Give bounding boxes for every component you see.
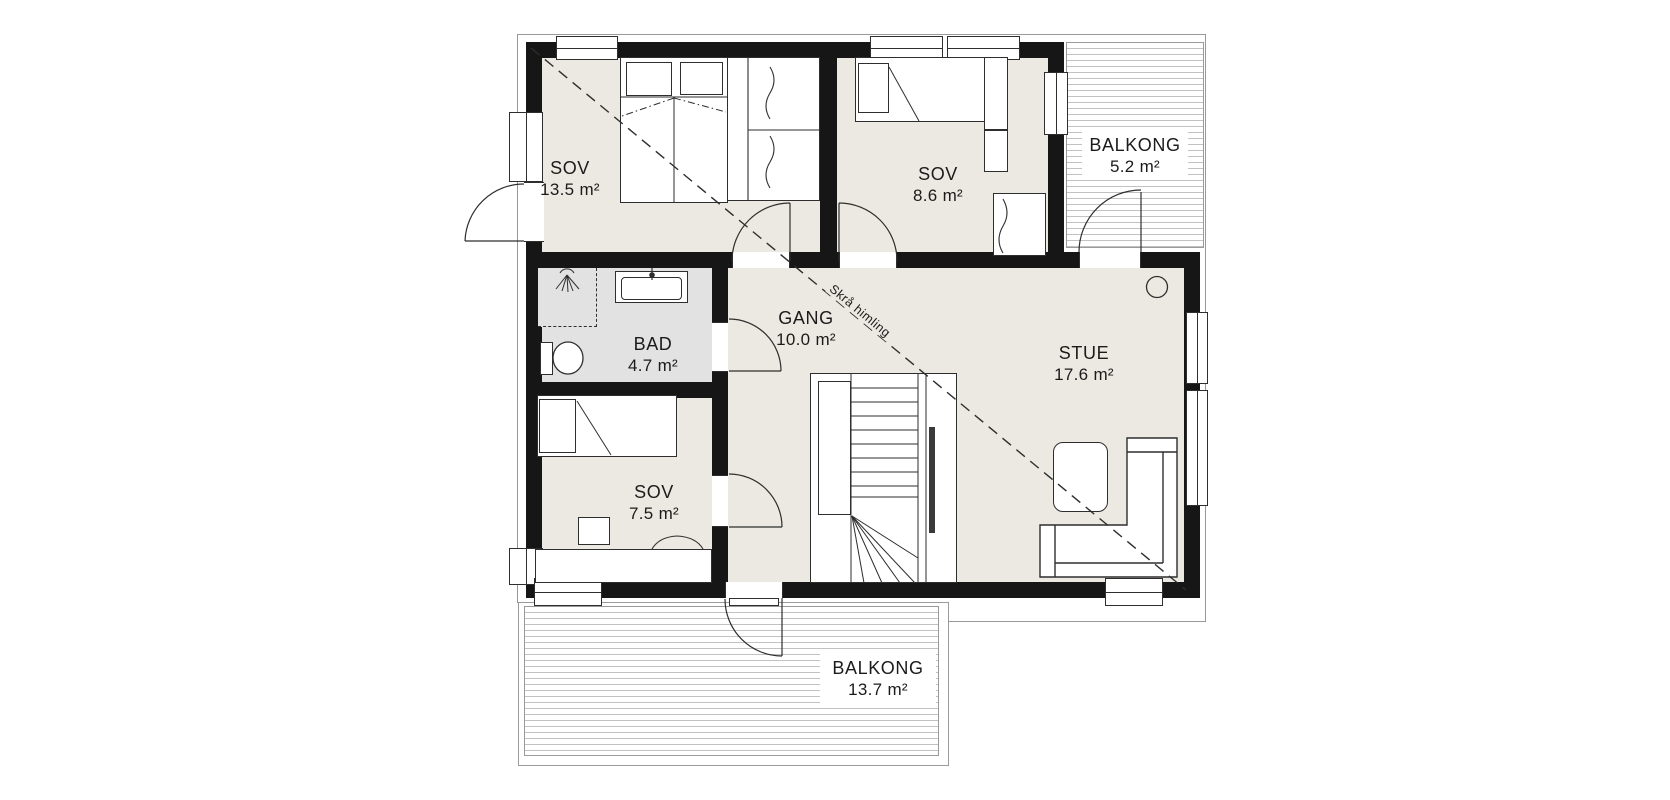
room-label-sov3: SOV 7.5 m² [629,482,679,524]
shelf-sov2 [984,57,1008,130]
room-label-bad: BAD 4.7 m² [628,334,678,376]
window-sov1-left [509,112,543,182]
window-stue-right-1 [1186,312,1208,384]
door-opening-balcony-top [1079,252,1141,268]
room-label-stue: STUE 17.6 m² [1054,343,1114,385]
room-name: SOV [629,482,679,503]
stool-sov3 [578,517,610,545]
room-name: SOV [540,158,600,179]
window-stue-bottom [1105,578,1163,606]
door-opening-bad [712,322,728,372]
window-sov2-balcony [1044,72,1068,135]
room-area: 7.5 m² [629,503,679,524]
door-threshold-balcony-bottom [729,598,779,606]
room-name: STUE [1054,343,1114,364]
door-opening-sov2 [839,252,897,268]
wardrobe-sov1 [727,57,820,201]
room-label-gang: GANG 10.0 m² [776,308,836,350]
room-name: SOV [913,164,963,185]
door-opening-sov3 [712,475,728,527]
staircase-landing-strip [818,381,851,515]
floor-plan-canvas: SOV 13.5 m² SOV 8.6 m² BALKONG 5.2 m² BA… [0,0,1670,800]
sink-basin [621,277,682,300]
room-area: 13.7 m² [832,679,923,700]
room-area: 4.7 m² [628,355,678,376]
room-label-sov1: SOV 13.5 m² [540,158,600,200]
door-entry [465,184,524,241]
wardrobe-sov2 [993,193,1046,256]
desk-sov3 [535,549,712,583]
room-area: 5.2 m² [1089,156,1180,177]
pillow [539,399,576,453]
staircase-handrail [929,427,935,533]
room-name: GANG [776,308,836,329]
window-sov1-top [556,36,618,60]
door-opening-sov1 [732,252,790,268]
room-label-balkong-top: BALKONG 5.2 m² [1089,135,1180,177]
coffee-table [1053,442,1108,512]
wall-between-bedrooms [820,42,837,268]
desk-sov2 [984,130,1008,172]
eaves-line-top [517,34,1206,35]
room-area: 10.0 m² [776,329,836,350]
room-area: 17.6 m² [1054,364,1114,385]
door-opening-balcony-bottom [725,582,783,598]
room-name: BALKONG [1089,135,1180,156]
room-name: BAD [628,334,678,355]
room-label-sov2: SOV 8.6 m² [913,164,963,206]
room-area: 13.5 m² [540,179,600,200]
pillow [858,63,889,113]
wall-bottom [526,582,1200,598]
pillow [626,62,672,96]
pillow [680,62,723,95]
room-name: BALKONG [832,658,923,679]
room-label-balkong-bottom: BALKONG 13.7 m² [832,658,923,700]
toilet-tank [540,342,553,375]
shower-area [538,268,597,327]
room-area: 8.6 m² [913,185,963,206]
eaves-line-bottom [949,621,1206,622]
window-stue-right-2 [1186,390,1208,506]
wall-bad-right [712,268,728,582]
